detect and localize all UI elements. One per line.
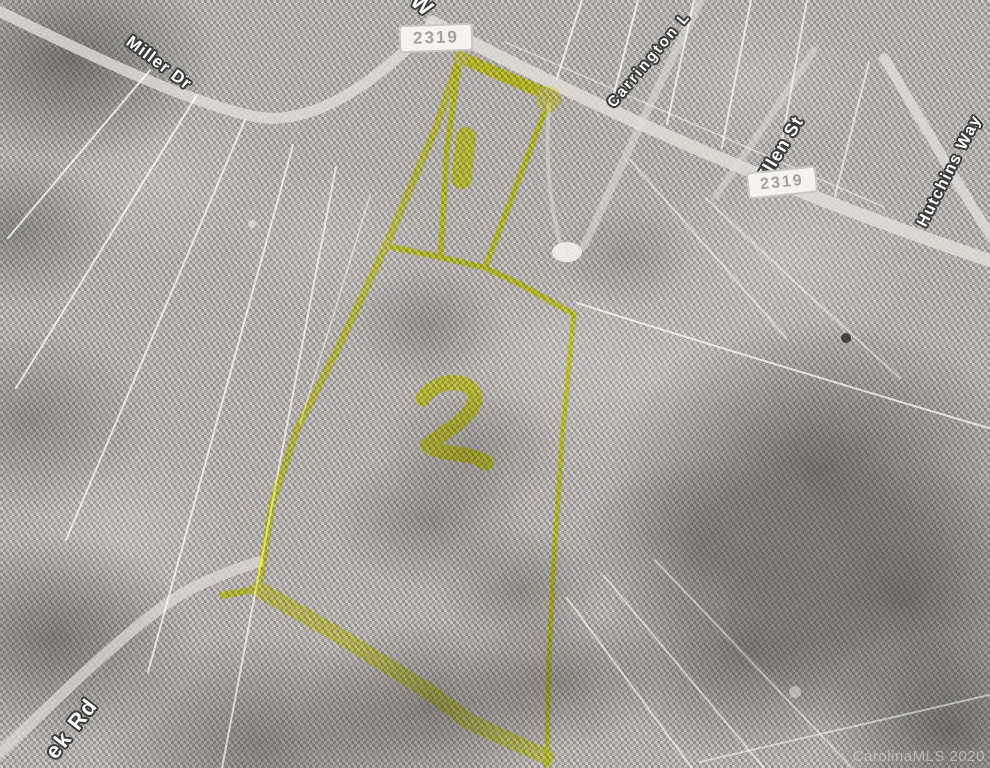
- highlight-apex-blob: [454, 52, 468, 66]
- highlight-corner-blob: [536, 86, 562, 112]
- highlighted-parcel-outline-layer: [0, 0, 990, 768]
- parcel-boundary-east: [547, 314, 574, 768]
- highlight-southwest-blob: [251, 581, 267, 597]
- aerial-map-view: Miller Dr W Carrington L Ellen St Hutchi…: [0, 0, 990, 768]
- parcel-2-number-mark: [423, 383, 487, 463]
- highlight-junction-blob: [381, 239, 393, 251]
- parcel-boundary-west: [259, 57, 460, 589]
- parcel-1-road-edge: [460, 57, 551, 96]
- parcel-1-east-edge: [486, 96, 551, 266]
- watermark: CarolinaMLS 2020: [853, 748, 985, 765]
- parcel-divider-line: [387, 246, 574, 314]
- parcel-1-number-mark: [462, 137, 466, 179]
